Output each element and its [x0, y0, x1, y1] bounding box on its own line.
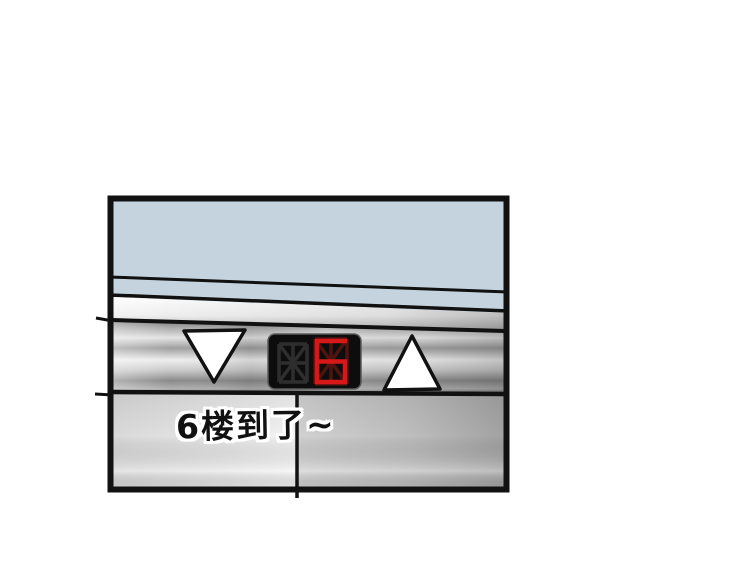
comic-panel-art: 6	[0, 0, 750, 586]
floor-indicator-display: 6	[268, 334, 361, 389]
comic-page: 6 6楼到了~	[0, 0, 750, 586]
band-bottom-line	[110, 392, 507, 394]
caption-text: 6楼到了~	[176, 398, 336, 449]
digit-left-off	[279, 344, 307, 382]
digit-right-6	[315, 339, 347, 384]
